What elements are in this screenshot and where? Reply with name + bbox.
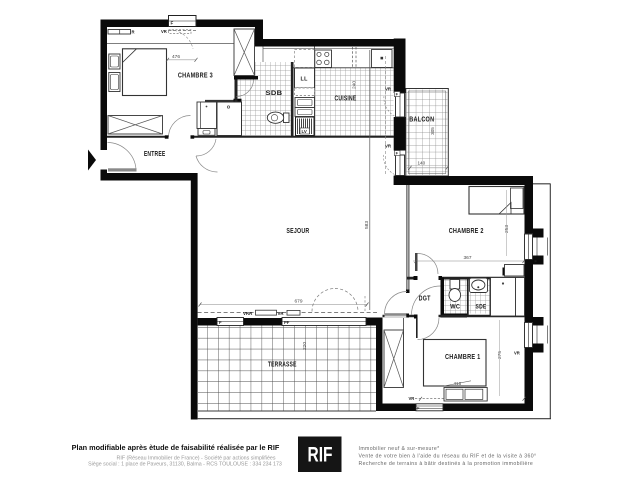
- svg-text:RIF: RIF: [308, 444, 333, 467]
- svg-text:VR: VR: [278, 311, 285, 316]
- svg-text:CUISINE: CUISINE: [335, 94, 357, 103]
- svg-text:VR: VR: [161, 29, 167, 34]
- svg-text:VR: VR: [385, 87, 392, 92]
- svg-text:Immobilier neuf & sur-mesure*: Immobilier neuf & sur-mesure*: [359, 446, 440, 452]
- svg-text:305: 305: [430, 127, 435, 135]
- svg-text:140: 140: [418, 160, 426, 165]
- svg-text:SDB: SDB: [266, 90, 283, 97]
- svg-text:LL: LL: [301, 77, 309, 83]
- svg-text:Siège social : 1 place de Pave: Siège social : 1 place de Paveurs, 31130…: [88, 462, 282, 468]
- svg-text:240: 240: [352, 81, 358, 89]
- svg-text:VRR: VRR: [243, 311, 253, 316]
- svg-text:RIF (Réseau Immobilier de Fran: RIF (Réseau Immobilier de France) - Soci…: [117, 455, 276, 461]
- svg-text:275: 275: [497, 351, 503, 359]
- svg-text:DGT: DGT: [419, 295, 431, 302]
- svg-text:TERRASSE: TERRASSE: [268, 360, 297, 369]
- svg-text:VR: VR: [514, 351, 520, 356]
- svg-text:679: 679: [295, 299, 303, 305]
- svg-text:VR: VR: [385, 143, 392, 148]
- svg-text:Plan modifiable après ètude de: Plan modifiable après ètude de faisabili…: [72, 443, 280, 452]
- svg-text:SDE: SDE: [476, 304, 487, 311]
- svg-text:F: F: [171, 21, 174, 26]
- svg-text:CHAMBRE 3: CHAMBRE 3: [178, 70, 213, 79]
- svg-text:253: 253: [504, 225, 510, 233]
- svg-text:476: 476: [172, 54, 180, 60]
- svg-text:Vente de votre bien à l'aide d: Vente de votre bien à l'aide du réseau d…: [359, 454, 537, 460]
- svg-text:CHAMBRE 2: CHAMBRE 2: [449, 226, 484, 235]
- svg-text:220: 220: [302, 342, 308, 350]
- svg-text:R: R: [132, 29, 135, 34]
- svg-text:F: F: [219, 320, 222, 325]
- svg-text:PF: PF: [284, 320, 290, 325]
- svg-text:Recherche de terrains à bâtir: Recherche de terrains à bâtir destinés à…: [359, 461, 534, 467]
- svg-text:583: 583: [364, 221, 370, 229]
- svg-text:LV: LV: [302, 129, 307, 134]
- svg-text:WC: WC: [450, 304, 460, 311]
- svg-text:CHAMBRE 1: CHAMBRE 1: [445, 352, 481, 361]
- svg-text:ENTREE: ENTREE: [144, 149, 166, 158]
- svg-text:367: 367: [464, 255, 472, 261]
- svg-text:BALCON: BALCON: [409, 114, 434, 123]
- svg-text:SEJOUR: SEJOUR: [286, 226, 309, 235]
- svg-text:VR: VR: [409, 396, 415, 401]
